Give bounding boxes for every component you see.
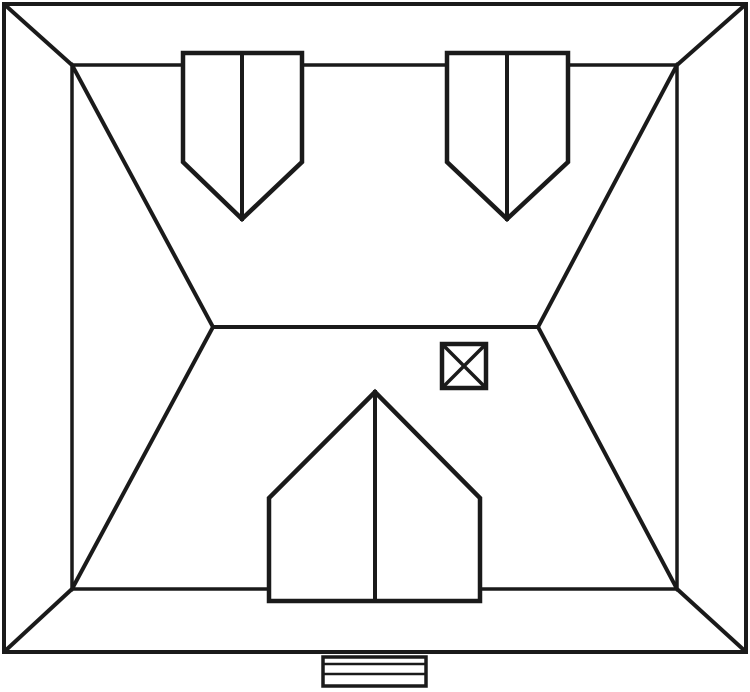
house-roof-plan-drawing (0, 0, 750, 692)
entry-steps-outline (323, 657, 426, 686)
roof-plan-svg (0, 0, 750, 692)
hip-line-bottom-left (72, 327, 213, 589)
corner-miter-top-left (5, 5, 72, 65)
corner-miter-bottom-right (677, 589, 745, 651)
corner-miter-bottom-left (5, 589, 72, 651)
hip-line-bottom-right (538, 327, 677, 589)
corner-miter-top-right (677, 5, 745, 65)
